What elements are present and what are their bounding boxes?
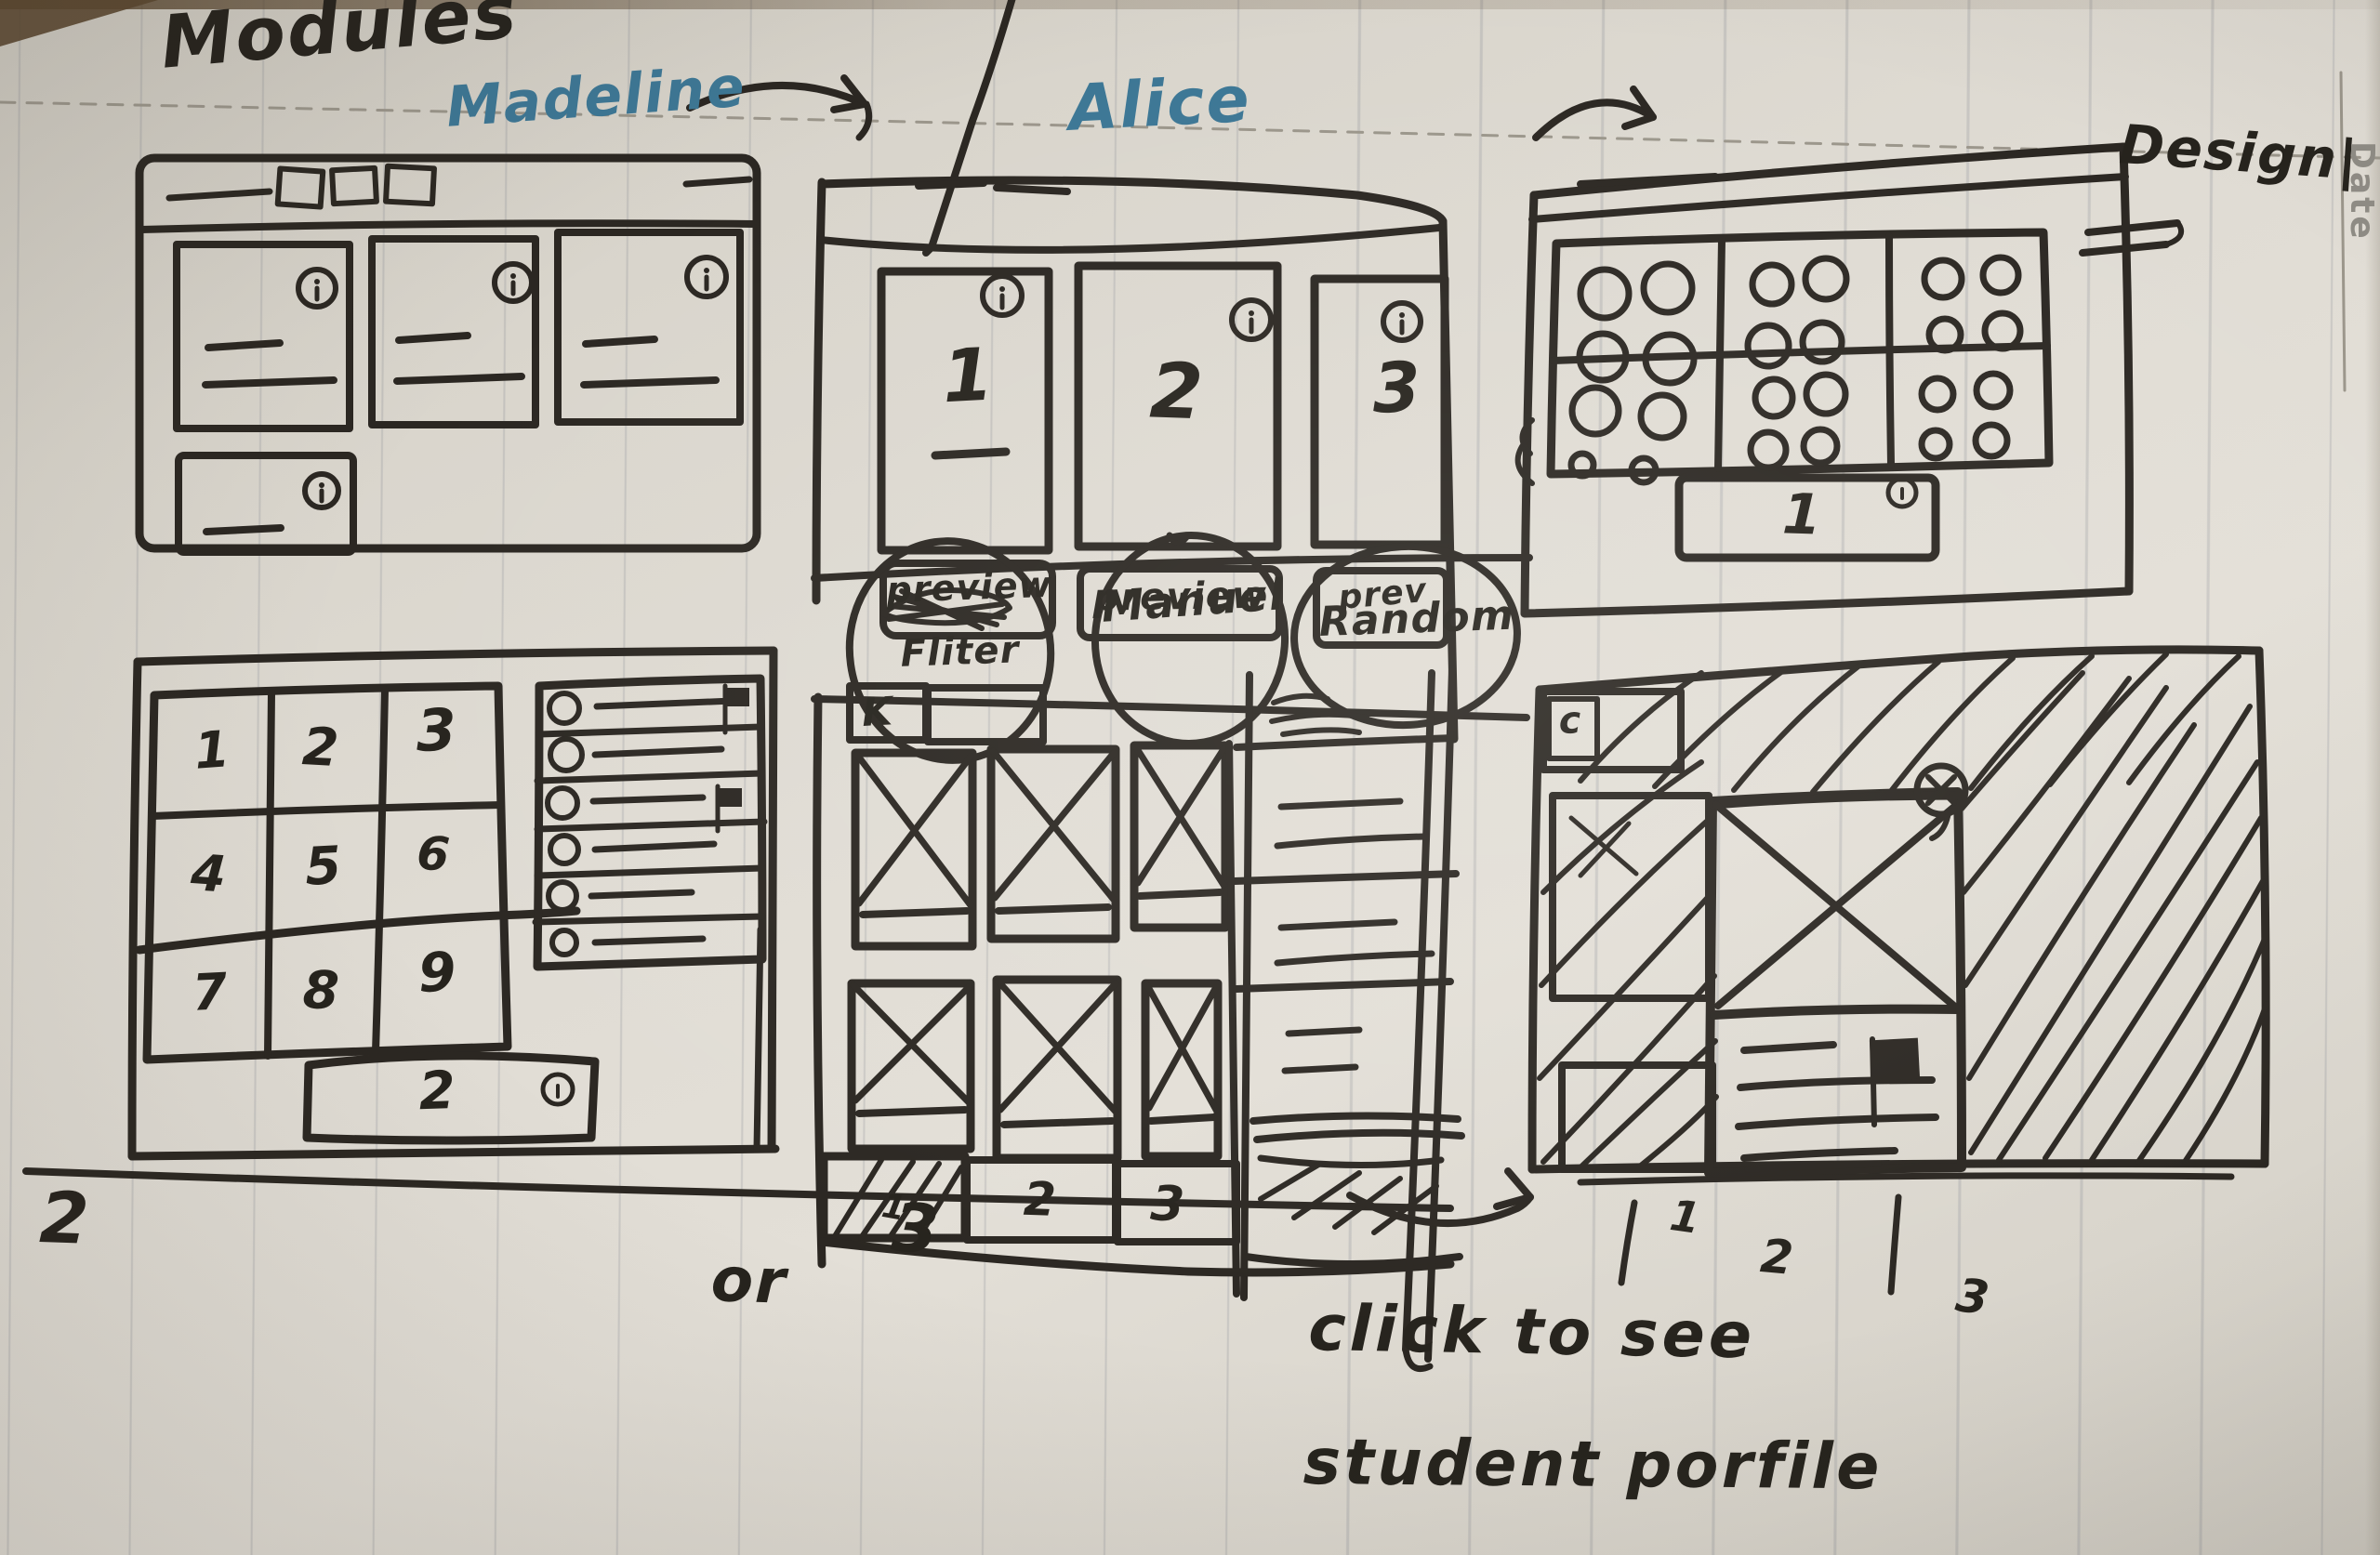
profile-back-label: c (1558, 702, 1582, 740)
sort-option-filter: Fliter (894, 631, 1025, 673)
module-card-number-1: 1 (930, 338, 1008, 415)
grid-number-7: 7 (189, 967, 232, 1019)
grid-number-2: 2 (299, 721, 343, 775)
module-card-partial (178, 455, 353, 552)
search-box (928, 688, 1043, 742)
module-card-number-3: 3 (1363, 352, 1433, 423)
numbers-page-button-label: 2 (400, 1064, 476, 1119)
notebook-sketch-photo: Modules Madeline Alice Design| Date 1 2 … (0, 0, 2380, 1555)
titlebar-dash (169, 191, 270, 198)
sketch-linework (0, 0, 2380, 1555)
module-card (177, 244, 350, 428)
grid-number-1: 1 (191, 724, 235, 777)
thumbnail (852, 983, 971, 1149)
profile-window-frame (1532, 650, 2267, 1292)
grid-number-8: 8 (300, 965, 343, 1019)
background-card (1553, 796, 1709, 998)
variant-number-left: 2 (38, 1182, 92, 1255)
flag-icon (718, 686, 749, 831)
variant-or-label: or (710, 1249, 788, 1313)
image-placeholder-x (1716, 805, 1956, 1008)
margin-date-label: Date (2345, 141, 2378, 242)
sort-option-manuel: Manuel (1099, 573, 1288, 628)
gallery-page-2: 2 (1002, 1175, 1078, 1224)
groups-page-button-label: 1 (1746, 485, 1859, 545)
grid-number-4: 4 (187, 848, 231, 901)
variant-number-right: 3 (890, 1193, 943, 1263)
preview-button-label-1: preview (885, 567, 1053, 608)
roster-list (535, 679, 764, 967)
profile-page-1: 1 (1668, 1193, 1704, 1240)
grid-number-9: 9 (416, 944, 460, 1000)
thumbnail (1134, 745, 1225, 928)
thumbnail (997, 980, 1117, 1158)
persona-label-alice: Alice (1067, 69, 1252, 141)
grid-number-6: 6 (412, 829, 456, 879)
thumbnail (1145, 983, 1218, 1156)
thumbnail (855, 753, 972, 946)
arrow-alice-to-design (1536, 89, 1653, 138)
titlebar-squares (278, 166, 434, 207)
profile-modal (1709, 766, 1965, 1173)
module-card (372, 239, 535, 425)
design-label: Design| (2118, 117, 2360, 188)
note-line-1: click to see (1308, 1298, 1756, 1368)
grid-number-5: 5 (302, 840, 346, 894)
note-line-2: student porfile (1302, 1431, 1883, 1499)
grid-number-3: 3 (414, 701, 460, 760)
overlay-hatching (1540, 654, 2267, 1169)
thumbnail (991, 749, 1116, 939)
pointer-line-from-top (926, 0, 1013, 253)
design-underline-mark (2082, 223, 2181, 253)
profile-page-3: 3 (1953, 1272, 1993, 1323)
gallery-page-3: 3 (1130, 1179, 1207, 1231)
profile-page-2: 2 (1759, 1232, 1797, 1282)
corner-hatch (1246, 1164, 1460, 1264)
gallery-back-label: K (861, 692, 894, 732)
modules-window-frame (139, 158, 757, 552)
module-card (558, 232, 740, 422)
sort-option-random: Random (1318, 596, 1505, 643)
module-card-number-2: 2 (1137, 353, 1218, 432)
group-circles (1571, 257, 2020, 482)
